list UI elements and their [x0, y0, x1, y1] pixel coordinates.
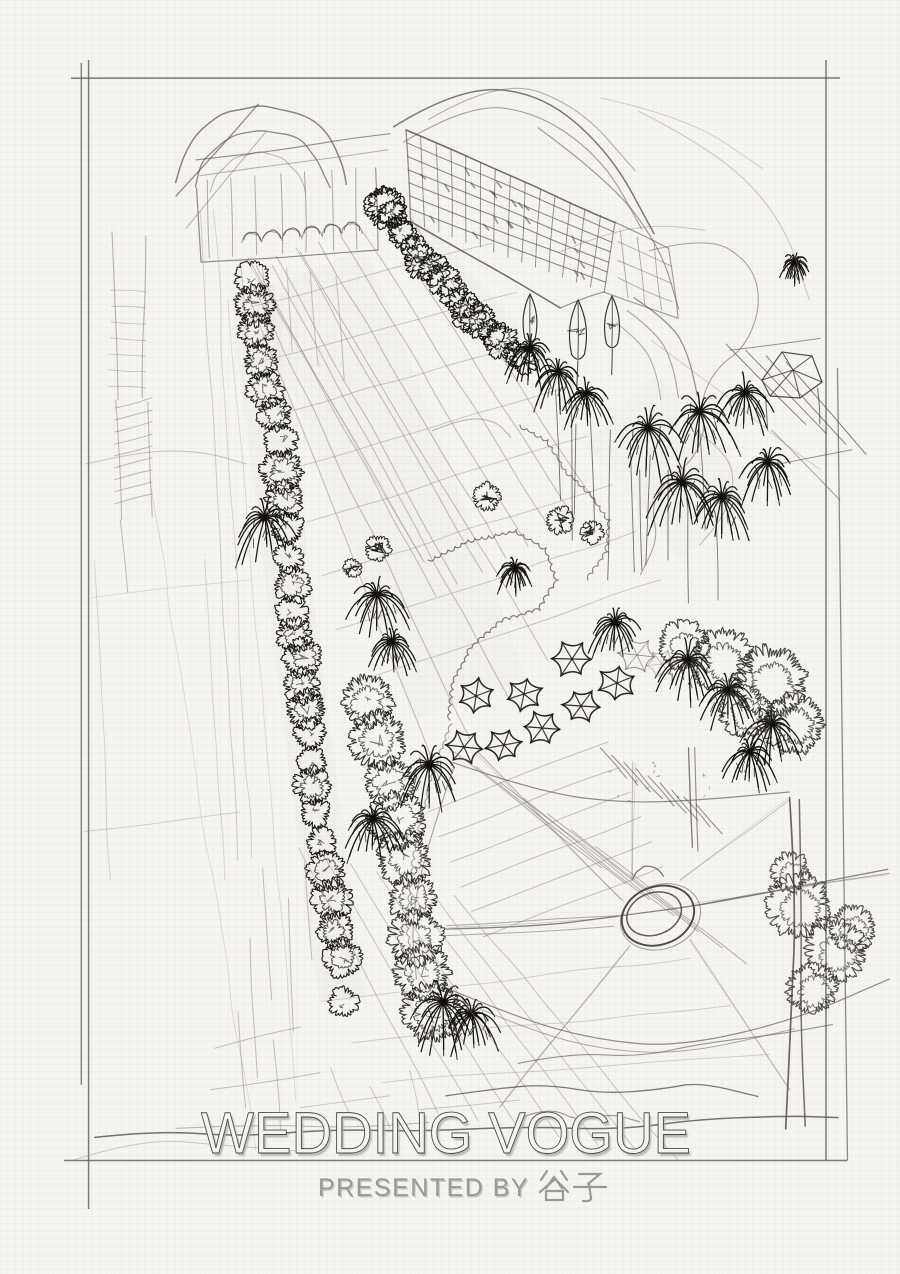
- svg-text:WEDDING VOGUE: WEDDING VOGUE: [201, 1101, 691, 1166]
- svg-text:PRESENTED BY: PRESENTED BY: [318, 1174, 529, 1202]
